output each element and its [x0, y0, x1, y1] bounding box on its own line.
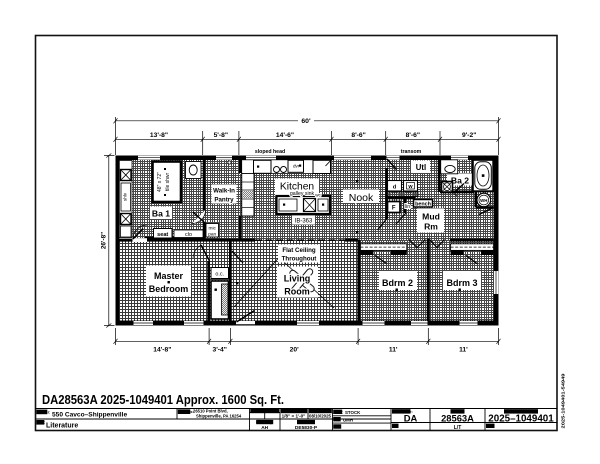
- svg-text:STOCK: STOCK: [345, 410, 361, 415]
- svg-text:28563A: 28563A: [441, 413, 474, 424]
- svg-text:lin: lin: [405, 204, 410, 210]
- svg-text:26'-8": 26'-8": [101, 232, 108, 249]
- svg-text:S/N:: S/N:: [334, 425, 341, 429]
- svg-text:dvr: dvr: [293, 164, 300, 169]
- svg-text:Mud: Mud: [422, 212, 440, 222]
- svg-text:Address:: Address:: [179, 410, 194, 414]
- svg-text:UMH: UMH: [343, 418, 353, 423]
- svg-text:shlv: shlv: [123, 192, 128, 201]
- svg-text:L/T: L/T: [454, 425, 462, 431]
- svg-text:60': 60': [301, 118, 311, 125]
- svg-text:Shippenville, PA 16254: Shippenville, PA 16254: [196, 414, 242, 419]
- svg-text:DA: DA: [404, 413, 418, 424]
- svg-text:8'-6": 8'-6": [406, 132, 420, 139]
- svg-text:Ba 2: Ba 2: [451, 176, 469, 186]
- svg-text:pan: pan: [208, 233, 216, 238]
- svg-text:08/10/2025: 08/10/2025: [309, 414, 332, 419]
- svg-text:Pantry: Pantry: [214, 197, 234, 204]
- svg-text:5'-8": 5'-8": [214, 132, 228, 139]
- svg-text:Ba 1: Ba 1: [152, 209, 170, 219]
- svg-text:2025–1049401: 2025–1049401: [488, 414, 554, 425]
- svg-text:11': 11': [389, 347, 398, 354]
- svg-text:seat: seat: [157, 232, 168, 238]
- svg-text:d: d: [393, 185, 397, 191]
- svg-text:Literature: Literature: [46, 423, 78, 430]
- svg-text:F: F: [392, 206, 396, 212]
- svg-text:Living: Living: [284, 274, 311, 284]
- svg-text:Pg:: Pg:: [393, 424, 399, 428]
- svg-text:11': 11': [459, 347, 468, 354]
- svg-text:13'-8": 13'-8": [150, 132, 168, 139]
- svg-text:Master: Master: [154, 271, 184, 281]
- svg-text:3'-4": 3'-4": [212, 347, 226, 354]
- svg-text:1/8" = 1'-0": 1/8" = 1'-0": [282, 414, 306, 419]
- svg-text:550 Cavco–Shippenville: 550 Cavco–Shippenville: [52, 412, 127, 419]
- svg-text:8'-6": 8'-6": [351, 132, 365, 139]
- svg-text:14'-6": 14'-6": [276, 132, 294, 139]
- svg-text:14'-8": 14'-8": [153, 347, 171, 354]
- svg-text:Revisions: Revisions: [256, 409, 273, 413]
- svg-text:20': 20': [290, 347, 299, 354]
- svg-text:bench: bench: [415, 202, 431, 208]
- svg-text:Div:: Div:: [334, 418, 341, 422]
- svg-text:Bedroom: Bedroom: [149, 284, 189, 294]
- svg-text:2025-1049401-54949: 2025-1049401-54949: [561, 373, 566, 429]
- svg-text:Builder:: Builder:: [37, 410, 50, 414]
- svg-text:transom: transom: [401, 149, 422, 155]
- svg-text:sloped head: sloped head: [255, 149, 285, 155]
- svg-text:DA28563A 2025-1049401 Approx.: DA28563A 2025-1049401 Approx. 1600 Sq. F…: [42, 392, 284, 407]
- svg-text:Drawn By:: Drawn By:: [256, 420, 273, 424]
- svg-text:Title:: Title:: [37, 421, 45, 425]
- svg-text:Run:: Run:: [487, 424, 495, 428]
- svg-text:Nook: Nook: [349, 192, 374, 204]
- svg-text:w: w: [407, 184, 413, 190]
- svg-text:Utl: Utl: [416, 163, 426, 172]
- svg-text:clo: clo: [185, 232, 192, 238]
- svg-text:o.c.: o.c.: [215, 272, 224, 278]
- svg-text:48" x 72": 48" x 72": [157, 172, 163, 192]
- svg-text:Bdrm 3: Bdrm 3: [446, 278, 477, 288]
- svg-text:Rm: Rm: [424, 222, 438, 232]
- svg-text:9'-2": 9'-2": [462, 132, 476, 139]
- svg-text:AH: AH: [261, 425, 268, 431]
- svg-text:mic: mic: [208, 226, 216, 232]
- svg-text:galley sink: galley sink: [290, 191, 315, 197]
- svg-text:Walk-In: Walk-In: [213, 188, 235, 195]
- svg-text:Throughout: Throughout: [282, 256, 317, 263]
- svg-text:Reference:: Reference:: [297, 420, 315, 424]
- svg-text:wc: wc: [315, 193, 321, 198]
- svg-text:Room: Room: [284, 287, 310, 297]
- svg-text:DE5830-P: DE5830-P: [295, 425, 318, 431]
- svg-text:Bdrm 2: Bdrm 2: [382, 278, 413, 288]
- svg-text:tile shwr: tile shwr: [165, 172, 171, 191]
- svg-text:WH: WH: [480, 198, 487, 203]
- svg-text:Flat Ceiling: Flat Ceiling: [282, 247, 316, 254]
- svg-text:IB-363: IB-363: [295, 219, 313, 225]
- svg-text:Cust:: Cust:: [334, 410, 343, 414]
